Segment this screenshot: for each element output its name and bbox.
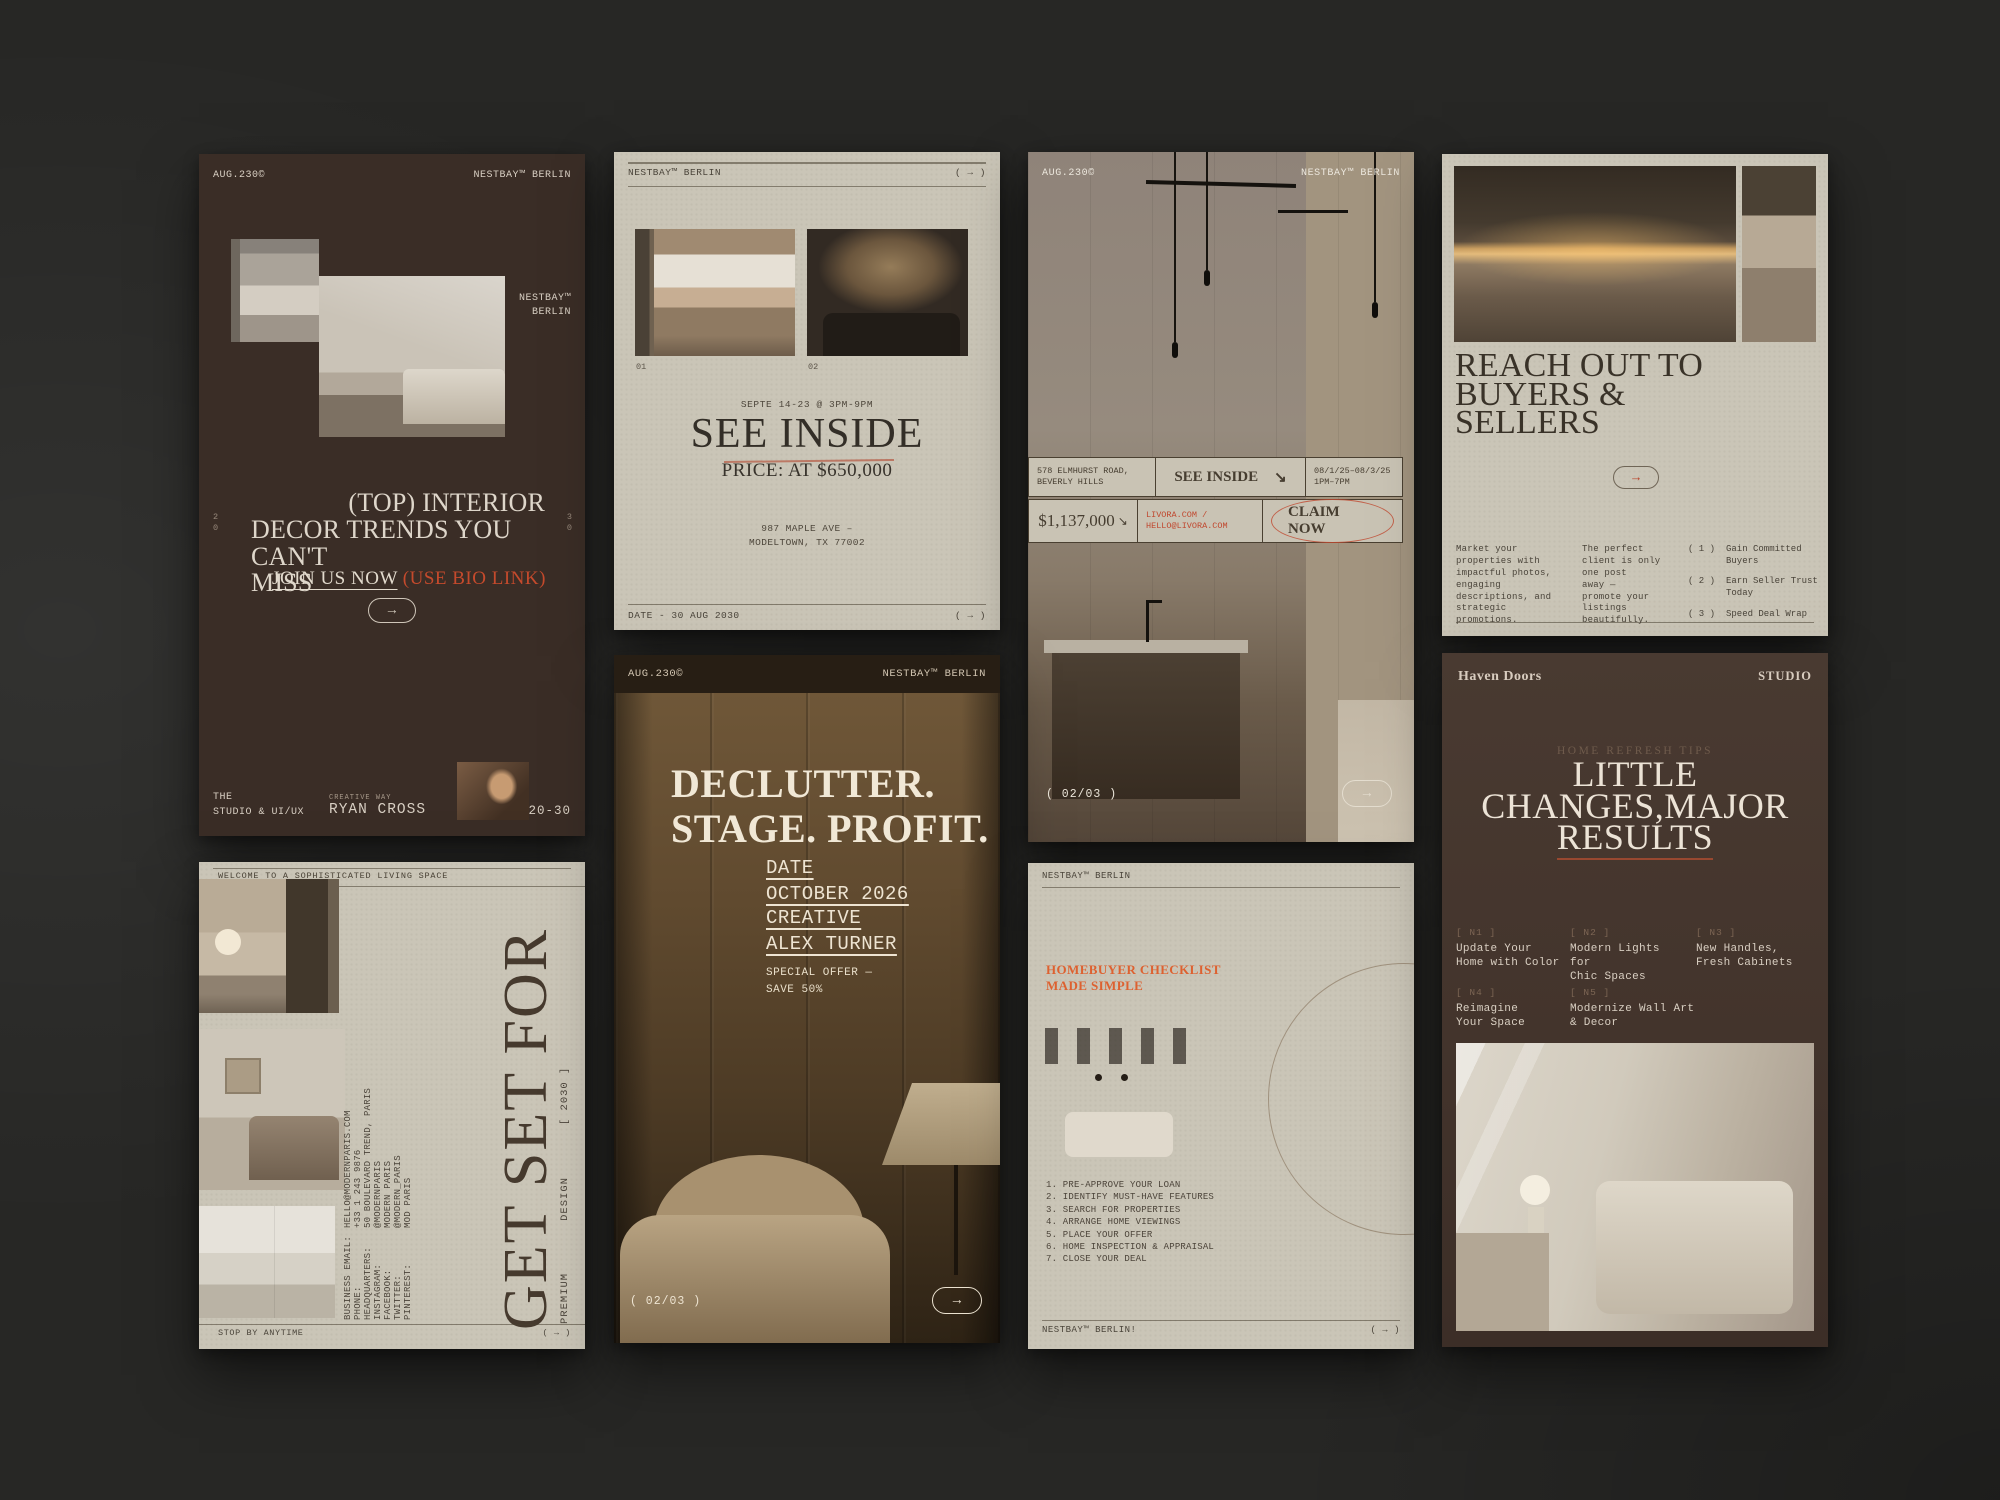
photo-caption-02: 02 xyxy=(808,362,818,372)
claim-now-cell: CLAIM NOW xyxy=(1262,500,1402,542)
contact-row: BUSINESS EMAIL:HELLO@MODERNPARIS.COM xyxy=(343,1048,353,1320)
side-digits-left: 2 0 xyxy=(213,512,218,533)
contact-row: INSTAGRAM:@MODERNPARIS xyxy=(373,1048,383,1320)
contact-label: PHONE: xyxy=(353,1228,363,1320)
post-card-get-set: WELCOME TO A SOPHISTICATED LIVING SPACE … xyxy=(199,862,585,1349)
right-arrow-icon: → xyxy=(1632,470,1640,485)
header-arrow-link[interactable]: ( → ) xyxy=(955,167,986,178)
see-inside-label: SEE INSIDE xyxy=(1174,469,1258,486)
divider xyxy=(213,868,571,869)
benefit-num: ( 1 ) xyxy=(1688,544,1718,567)
divider xyxy=(628,604,986,605)
claim-now-button[interactable]: CLAIM NOW xyxy=(1271,499,1394,543)
join-us-now-link[interactable]: JOIN US NOW xyxy=(272,568,397,589)
contact-list-rotated: BUSINESS EMAIL:HELLO@MODERNPARIS.COM PHO… xyxy=(343,1048,413,1320)
divider xyxy=(628,186,986,187)
card8-header: Haven Doors STUDIO xyxy=(1458,669,1812,685)
benefit-text: Gain Committed Buyers xyxy=(1726,544,1802,567)
checklist-item: 4. ARRANGE HOME VIEWINGS xyxy=(1046,1216,1214,1228)
kitchen-photo-strip xyxy=(1742,166,1816,342)
premium-label: PREMIUM xyxy=(559,1273,571,1324)
contact-row: PINTEREST:MOD PARIS xyxy=(403,1048,413,1320)
lamp-stem-shape xyxy=(954,1165,958,1275)
post-card-checklist: NESTBAY™ BERLIN HOMEBUYER CHECKLIST MADE… xyxy=(1028,863,1414,1349)
info-row-1: 578 ELMHURST ROAD, BEVERLY HILLS SEE INS… xyxy=(1028,457,1403,497)
right-arrow-icon: → xyxy=(388,603,396,619)
benefit-item: ( 1 ) Gain Committed Buyers xyxy=(1688,544,1818,567)
benefit-num: ( 3 ) xyxy=(1688,609,1718,621)
footer-brand: NESTBAY™ BERLIN! xyxy=(1042,1325,1136,1335)
divider xyxy=(199,1324,585,1325)
info-row-2: $1,137,000 ↘ LIVORA.COM / HELLO@LIVORA.C… xyxy=(1028,499,1403,543)
creative-label: CREATIVE xyxy=(766,905,897,931)
listing-address: 578 ELMHURST ROAD, BEVERLY HILLS xyxy=(1029,458,1155,496)
tip-text: Modernize Wall Art & Decor xyxy=(1570,1002,1700,1030)
bio-link-note: (USE BIO LINK) xyxy=(398,568,546,589)
living-room-photo xyxy=(1045,1028,1191,1168)
creative-name: RYAN CROSS xyxy=(329,802,426,818)
contact-row: HEADQUARTERS:50 BOULEVARD TREND, PARIS xyxy=(363,1048,373,1320)
tip-item: [ N4 ] Reimagine Your Space xyxy=(1456,987,1572,1030)
cta-line: JOIN US NOW (USE BIO LINK) xyxy=(259,568,559,590)
page-indicator: ( 02/03 ) xyxy=(630,1295,701,1308)
rotated-meta-line: PREMIUM DESIGN [ 2030 ] xyxy=(559,1024,571,1324)
photo-caption-01: 01 xyxy=(636,362,646,372)
headline: DECLUTTER. STAGE. PROFIT. xyxy=(671,761,989,851)
checklist-item: 5. PLACE YOUR OFFER xyxy=(1046,1229,1214,1241)
card6-header: AUG.230© NESTBAY™ BERLIN xyxy=(614,655,1000,693)
contact-value: HELLO@MODERNPARIS.COM xyxy=(343,1110,353,1228)
footer-arrow-link[interactable]: ( → ) xyxy=(542,1328,571,1338)
sofa-shape xyxy=(823,313,960,356)
decorative-circle xyxy=(1268,963,1414,1235)
contact-value: @MODERN_PARIS xyxy=(393,1155,403,1228)
benefit-text: Earn Seller Trust Today xyxy=(1726,576,1818,599)
headline: REACH OUT TO BUYERS & SELLERS xyxy=(1455,352,1828,438)
benefit-item: ( 2 ) Earn Seller Trust Today xyxy=(1688,576,1818,599)
checklist-item: 3. SEARCH FOR PROPERTIES xyxy=(1046,1204,1214,1216)
big-rotated-headline: GET SET FOR xyxy=(491,910,562,1330)
arrow-pill-button[interactable]: → xyxy=(1613,466,1659,489)
bathroom-photo xyxy=(1456,1043,1814,1331)
benefit-num: ( 2 ) xyxy=(1688,576,1718,599)
post-card-see-inside: NESTBAY™ BERLIN ( → ) 01 02 SEPTE 14-23 … xyxy=(614,152,1000,630)
card5-footer: STOP BY ANYTIME ( → ) xyxy=(218,1328,571,1338)
divider xyxy=(1456,622,1814,623)
contact-label: TWITTER: xyxy=(393,1228,403,1320)
portrait-photo xyxy=(457,762,529,820)
arrow-pill-button[interactable]: → xyxy=(1342,780,1392,807)
contact-row: PHONE:+33 1 243 9876 xyxy=(353,1048,363,1320)
footer-arrow-link[interactable]: ( → ) xyxy=(955,610,986,621)
contact-value: MODERN PARIS xyxy=(383,1161,393,1228)
creative-label: CREATIVE WAY xyxy=(329,794,426,802)
footer-note: STOP BY ANYTIME xyxy=(218,1328,304,1338)
armchair-seat-shape xyxy=(620,1215,890,1343)
tip-text: Modern Lights for Chic Spaces xyxy=(1570,942,1686,984)
tip-num: [ N2 ] xyxy=(1570,927,1686,938)
divider xyxy=(1042,887,1400,888)
date-stamp: AUG.230© xyxy=(213,170,265,181)
living-room-photo xyxy=(199,1029,345,1190)
sofa-shape xyxy=(1596,1181,1793,1313)
post-card-decor-trends: AUG.230© NESTBAY™ BERLIN NESTBAY™ BERLIN… xyxy=(199,154,585,836)
card2-footer: DATE - 30 AUG 2030 ( → ) xyxy=(628,610,986,621)
track-light-shape xyxy=(1278,210,1348,213)
creative-credit: CREATIVE WAY RYAN CROSS xyxy=(329,794,426,818)
diagonal-arrow-icon: ↘ xyxy=(1118,514,1128,529)
right-arrow-icon: → xyxy=(953,1293,961,1309)
brand-label: NESTBAY™ BERLIN xyxy=(473,170,571,181)
date-value: OCTOBER 2026 xyxy=(766,881,909,907)
brand-label: NESTBAY™ BERLIN xyxy=(628,167,721,178)
white-kitchen-photo xyxy=(199,1206,335,1318)
contact-value: @MODERNPARIS xyxy=(373,1161,383,1228)
arrow-pill-button[interactable]: → xyxy=(368,598,416,623)
table-lamp-shape xyxy=(1520,1175,1550,1205)
right-arrow-icon: → xyxy=(1363,786,1371,802)
ceiling-beams-shape xyxy=(1045,1028,1191,1064)
footer-date: DATE - 30 AUG 2030 xyxy=(628,610,740,621)
bed-shape xyxy=(403,369,505,424)
headline-line3: RESULTS xyxy=(1557,822,1713,860)
tip-text: New Handles, Fresh Cabinets xyxy=(1696,942,1820,970)
headline-line2: DECOR TRENDS YOU CAN'T xyxy=(251,517,545,571)
contact-label: INSTAGRAM: xyxy=(373,1228,383,1320)
cabinet-shape xyxy=(1456,1233,1549,1331)
headline-line1: (TOP) INTERIOR xyxy=(251,490,545,517)
contact-links[interactable]: LIVORA.COM / HELLO@LIVORA.COM xyxy=(1137,500,1262,542)
bulb-shape xyxy=(1204,270,1210,286)
brand-label: NESTBAY™ BERLIN xyxy=(882,668,986,680)
page-indicator: ( 02/03 ) xyxy=(1046,788,1117,801)
bulb-shape xyxy=(1372,302,1378,318)
tip-text: Reimagine Your Space xyxy=(1456,1002,1572,1030)
card3-header: AUG.230© NESTBAY™ BERLIN xyxy=(1042,168,1400,179)
contact-label: BUSINESS EMAIL: xyxy=(343,1228,353,1320)
tip-num: [ N3 ] xyxy=(1696,927,1820,938)
checklist: 1. PRE-APPROVE YOUR LOAN 2. IDENTIFY MUS… xyxy=(1046,1179,1214,1266)
contact-row: TWITTER:@MODERN_PARIS xyxy=(393,1048,403,1320)
card7-header: NESTBAY™ BERLIN xyxy=(1042,871,1400,881)
tip-item: [ N1 ] Update Your Home with Color xyxy=(1456,927,1572,970)
date-label: DATE xyxy=(766,855,909,881)
wall-art-shape xyxy=(225,1058,261,1094)
side-digits-right: 3 0 xyxy=(567,512,572,533)
listing-info-band: 578 ELMHURST ROAD, BEVERLY HILLS SEE INS… xyxy=(1028,457,1403,543)
card7-footer: NESTBAY™ BERLIN! ( → ) xyxy=(1042,1325,1400,1335)
interior-photo-room xyxy=(231,239,319,342)
date-block: DATE OCTOBER 2026 xyxy=(766,855,909,907)
card2-header: NESTBAY™ BERLIN ( → ) xyxy=(628,167,986,178)
benefit-item: ( 3 ) Speed Deal Wrap xyxy=(1688,609,1818,621)
contact-label: HEADQUARTERS: xyxy=(363,1228,373,1320)
range-tag: 20-30 xyxy=(528,804,571,818)
brand-stack: NESTBAY™ BERLIN xyxy=(519,292,571,320)
arrow-pill-button[interactable]: → xyxy=(932,1287,982,1314)
see-inside-headline: SEE INSIDE xyxy=(614,410,1000,458)
headline: LITTLE CHANGES,MAJOR RESULTS xyxy=(1442,759,1828,860)
brand-label: NESTBAY™ BERLIN xyxy=(1301,168,1400,179)
creative-block: CREATIVE ALEX TURNER xyxy=(766,905,897,957)
schedule-line: SEPTE 14-23 @ 3PM-9PM xyxy=(614,399,1000,410)
brand-label: NESTBAY™ BERLIN xyxy=(1042,871,1131,881)
bulb-shape xyxy=(1172,342,1178,358)
diagonal-arrow-icon: ↘ xyxy=(1274,468,1287,487)
mockup-canvas: AUG.230© NESTBAY™ BERLIN NESTBAY™ BERLIN… xyxy=(0,0,2000,1500)
post-card-reach-out: REACH OUT TO BUYERS & SELLERS → Market y… xyxy=(1442,154,1828,636)
bathroom-photo xyxy=(199,879,339,1013)
contact-row: FACEBOOK:MODERN PARIS xyxy=(383,1048,393,1320)
date-stamp: AUG.230© xyxy=(1042,168,1095,179)
benefits-list: ( 1 ) Gain Committed Buyers ( 2 ) Earn S… xyxy=(1688,544,1818,629)
kitchen-glow-photo xyxy=(1454,166,1736,342)
checklist-item: 7. CLOSE YOUR DEAL xyxy=(1046,1253,1214,1265)
tip-item: [ N2 ] Modern Lights for Chic Spaces xyxy=(1570,927,1686,984)
brand-label: Haven Doors xyxy=(1458,669,1542,685)
special-offer: SPECIAL OFFER — SAVE 50% xyxy=(766,965,873,998)
body-copy-col1: Market your properties with impactful ph… xyxy=(1456,544,1560,627)
round-mirror-shape xyxy=(215,929,241,955)
year-label: [ 2030 ] xyxy=(559,1067,571,1125)
open-dates: 08/1/25–08/3/25 1PM–7PM xyxy=(1305,458,1402,496)
divider xyxy=(1042,1320,1400,1321)
body-copy-col2: The perfect client is only one post away… xyxy=(1582,544,1682,627)
date-stamp: AUG.230© xyxy=(628,668,683,680)
divider xyxy=(628,162,986,164)
price-value: $1,137,000 xyxy=(1038,511,1115,531)
see-inside-cell: SEE INSIDE ↘ xyxy=(1155,458,1305,496)
creative-value: ALEX TURNER xyxy=(766,931,897,957)
sofa-shape xyxy=(249,1116,340,1180)
checklist-item: 2. IDENTIFY MUST-HAVE FEATURES xyxy=(1046,1191,1214,1203)
faucet-shape xyxy=(1146,600,1149,642)
checklist-item: 6. HOME INSPECTION & APPRAISAL xyxy=(1046,1241,1214,1253)
tip-text: Update Your Home with Color xyxy=(1456,942,1572,970)
lounge-photo xyxy=(807,229,968,356)
checklist-title: HOMEBUYER CHECKLIST MADE SIMPLE xyxy=(1046,962,1221,995)
tip-num: [ N5 ] xyxy=(1570,987,1700,998)
contact-label: PINTEREST: xyxy=(403,1228,413,1320)
kitchen-photo xyxy=(635,229,795,356)
address-line: 987 MAPLE AVE – MODELTOWN, TX 77002 xyxy=(614,522,1000,551)
price-line: PRICE: AT $650,000 xyxy=(614,460,1000,482)
faucet-shape xyxy=(1146,600,1162,603)
pendant-dot-shape xyxy=(1121,1074,1128,1081)
tip-item: [ N3 ] New Handles, Fresh Cabinets xyxy=(1696,927,1820,970)
design-label: DESIGN xyxy=(559,1177,571,1221)
post-card-listing: AUG.230© NESTBAY™ BERLIN 578 ELMHURST RO… xyxy=(1028,152,1414,842)
sofa-shape xyxy=(1065,1112,1173,1157)
footer-studio-label: THE STUDIO & UI/UX xyxy=(213,791,304,820)
tip-num: [ N4 ] xyxy=(1456,987,1572,998)
footer-arrow-link[interactable]: ( → ) xyxy=(1370,1325,1400,1335)
interior-photo-bedroom xyxy=(319,276,505,437)
contact-label: FACEBOOK: xyxy=(383,1228,393,1320)
contact-value: MOD PARIS xyxy=(403,1178,413,1228)
studio-label: STUDIO xyxy=(1758,669,1812,684)
contact-value: 50 BOULEVARD TREND, PARIS xyxy=(363,1088,373,1228)
tip-item: [ N5 ] Modernize Wall Art & Decor xyxy=(1570,987,1700,1030)
post-card-declutter: AUG.230© NESTBAY™ BERLIN DECLUTTER. STAG… xyxy=(614,655,1000,1343)
post-card-refresh-tips: Haven Doors STUDIO HOME REFRESH TIPS LIT… xyxy=(1442,653,1828,1347)
contact-value: +33 1 243 9876 xyxy=(353,1150,363,1228)
pendant-dot-shape xyxy=(1095,1074,1102,1081)
light-wall-panel xyxy=(1338,700,1414,842)
listing-price: $1,137,000 ↘ xyxy=(1029,500,1137,542)
island-base-shape xyxy=(1052,653,1240,799)
card1-header: AUG.230© NESTBAY™ BERLIN xyxy=(213,170,571,181)
tip-num: [ N1 ] xyxy=(1456,927,1572,938)
checklist-item: 1. PRE-APPROVE YOUR LOAN xyxy=(1046,1179,1214,1191)
benefit-text: Speed Deal Wrap xyxy=(1726,609,1807,621)
